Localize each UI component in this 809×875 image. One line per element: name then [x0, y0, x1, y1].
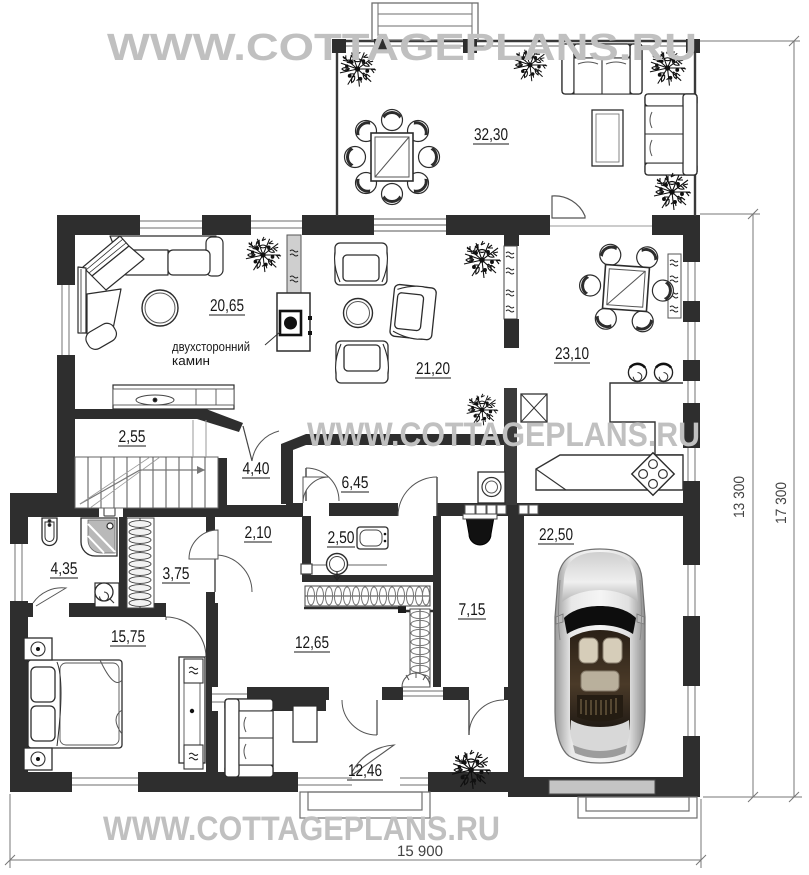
- svg-text:2,10: 2,10: [245, 523, 272, 542]
- svg-text:12,46: 12,46: [348, 761, 382, 780]
- svg-text:камин: камин: [172, 353, 210, 368]
- svg-text:15,75: 15,75: [111, 627, 145, 646]
- svg-text:2,50: 2,50: [328, 528, 355, 547]
- svg-text:23,10: 23,10: [555, 344, 589, 363]
- svg-text:WWW.COTTAGEPLANS.RU: WWW.COTTAGEPLANS.RU: [307, 416, 700, 454]
- svg-text:3,75: 3,75: [163, 564, 190, 583]
- svg-text:32,30: 32,30: [474, 125, 508, 144]
- svg-text:13 300: 13 300: [731, 476, 748, 518]
- svg-text:4,35: 4,35: [51, 559, 78, 578]
- svg-text:20,65: 20,65: [210, 296, 244, 315]
- svg-text:7,15: 7,15: [459, 600, 486, 619]
- svg-text:21,20: 21,20: [416, 359, 450, 378]
- svg-text:двухсторонний: двухсторонний: [172, 339, 250, 354]
- svg-text:17 300: 17 300: [773, 482, 790, 524]
- svg-text:22,50: 22,50: [539, 525, 573, 544]
- svg-text:2,55: 2,55: [119, 427, 146, 446]
- svg-text:12,65: 12,65: [295, 633, 329, 652]
- svg-text:4,40: 4,40: [243, 459, 270, 478]
- svg-text:6,45: 6,45: [342, 473, 369, 492]
- svg-text:WWW.COTTAGEPLANS.RU: WWW.COTTAGEPLANS.RU: [103, 810, 500, 848]
- svg-text:WWW.COTTAGEPLANS.RU: WWW.COTTAGEPLANS.RU: [107, 27, 697, 69]
